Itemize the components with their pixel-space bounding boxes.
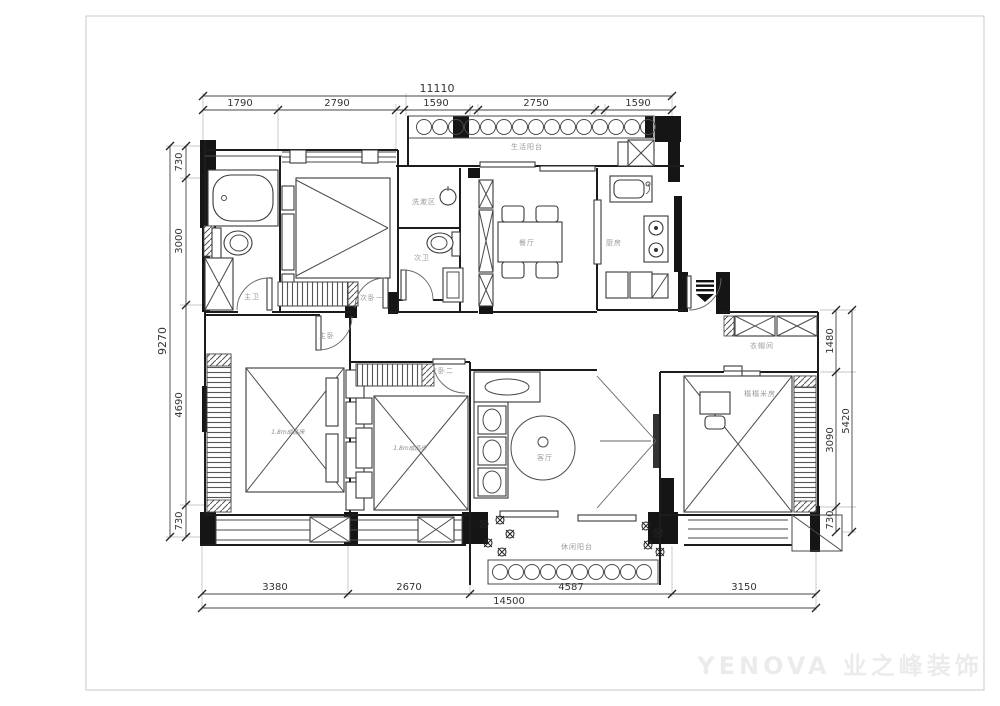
chair <box>536 206 558 222</box>
room-bedroom-two: 1.8m成品床 <box>356 364 468 510</box>
bed <box>296 178 390 278</box>
basin-icon <box>440 189 456 205</box>
room-master-bath: 主卫 <box>204 170 278 310</box>
pillow <box>326 378 338 426</box>
balcony-sliding-door-leaf <box>540 166 595 171</box>
label-service-balcony: 生活阳台 <box>511 142 543 151</box>
dim-right-3: 730 <box>825 510 836 529</box>
flue-shaft <box>618 140 654 166</box>
dim-bottom-total: 14500 <box>493 596 525 607</box>
stove-icon <box>644 216 668 262</box>
dimension-bottom: 3380 2670 4587 3150 14500 <box>198 546 820 612</box>
toilet-icon <box>212 228 252 258</box>
wardrobe <box>207 354 231 512</box>
floor-plan-page: 11110 1790 2790 1590 2750 1590 9270 730 … <box>0 0 1000 706</box>
label-wash-area: 洗漱区 <box>412 197 436 206</box>
room-guest-bath: 次卫 <box>401 232 463 302</box>
chair <box>502 206 524 222</box>
room-service-balcony: 生活阳台 <box>408 116 656 171</box>
nightstand-column <box>282 186 294 294</box>
dimension-left: 9270 730 3000 4690 730 <box>156 142 205 541</box>
dimension-top: 11110 1790 2790 1590 2750 1590 <box>199 82 676 152</box>
dim-bottom-4: 3150 <box>731 582 756 593</box>
wardrobe <box>356 364 434 386</box>
entry-direction-icon <box>696 280 714 302</box>
label-master-bedroom: 主卧 <box>319 331 335 340</box>
watermark: YENOVA 业之峰装饰 <box>696 652 983 680</box>
dimension-right: 1480 3090 730 5420 <box>820 306 856 536</box>
sliding-door-leaf <box>500 511 558 517</box>
sliding-door-leaf <box>724 366 742 371</box>
room-dining: 餐厅 <box>498 206 562 278</box>
bathtub-icon <box>208 170 278 226</box>
label-dining: 餐厅 <box>519 238 535 247</box>
tv-icon <box>597 376 659 508</box>
room-kitchen: 厨房 <box>594 176 668 298</box>
toilet-icon <box>427 232 460 256</box>
dim-left-4: 730 <box>174 511 185 530</box>
dim-top-2: 2790 <box>324 98 349 109</box>
door-master-bedroom: 主卧 <box>316 316 352 350</box>
sliding-door-leaf <box>742 371 760 376</box>
balcony-sliding-door-leaf <box>480 162 535 167</box>
dim-left-1: 730 <box>174 152 185 171</box>
dim-right-total: 5420 <box>841 408 852 433</box>
cabinet <box>443 268 463 302</box>
label-master-bath: 主卫 <box>244 292 260 301</box>
label-tatami: 榻榻米房 <box>744 389 776 398</box>
room-wash-area: 洗漱区 <box>412 186 456 206</box>
label-cloakroom: 衣帽间 <box>750 341 774 350</box>
dim-top-4: 2750 <box>523 98 548 109</box>
dim-top-3: 1590 <box>423 98 448 109</box>
bay-window-left <box>200 516 466 545</box>
sliding-door-leaf <box>578 515 636 521</box>
base-cabinets <box>606 272 668 298</box>
label-living: 客厅 <box>537 453 553 462</box>
label-master-bed: 1.8m成品床 <box>271 428 305 436</box>
chair <box>536 262 558 278</box>
rug: 客厅 <box>511 416 575 480</box>
label-leisure-balcony: 休闲阳台 <box>561 542 593 551</box>
dim-top-total: 11110 <box>420 82 455 95</box>
label-guest-bath: 次卫 <box>414 253 430 262</box>
floor-plan-canvas: 11110 1790 2790 1590 2750 1590 9270 730 … <box>0 0 1000 706</box>
dim-left-2: 3000 <box>174 228 185 253</box>
door-bedroom-two: 次卧二 <box>430 359 465 393</box>
kitchen-sink-icon <box>610 176 652 202</box>
kitchen-sliding-door <box>594 200 601 264</box>
label-bedroom-two-bed: 1.8m成品床 <box>393 444 427 452</box>
label-bedroom-one: 次卧一 <box>360 293 384 302</box>
label-kitchen: 厨房 <box>606 238 622 247</box>
window <box>282 150 396 163</box>
dim-left-3: 4690 <box>174 392 185 417</box>
page-border <box>86 16 984 690</box>
dim-left-total: 9270 <box>156 327 169 355</box>
dim-bottom-2: 2670 <box>396 582 421 593</box>
room-bedroom-one: 次卧一 <box>278 150 396 308</box>
entry <box>687 276 721 310</box>
room-leisure-balcony: 休闲阳台 <box>480 511 664 584</box>
room-cloakroom: 衣帽间 <box>724 316 817 376</box>
room-master-bedroom: 1.8m成品床 <box>207 354 364 512</box>
sofa <box>474 372 540 498</box>
bed <box>374 396 468 510</box>
dim-right-1: 1480 <box>825 328 836 353</box>
pillow <box>326 434 338 482</box>
room-tatami: 榻榻米房 <box>684 376 816 512</box>
desk-chair <box>700 392 730 429</box>
dim-bottom-1: 3380 <box>262 582 287 593</box>
wardrobe <box>278 282 358 306</box>
shower-tray <box>205 258 233 310</box>
door-guest-bath <box>401 270 433 300</box>
wardrobe <box>794 376 816 512</box>
chair <box>502 262 524 278</box>
room-living: 客厅 <box>474 372 659 508</box>
dim-right-2: 3090 <box>825 427 836 452</box>
column-cabinet-strip <box>479 180 493 306</box>
dim-top-5: 1590 <box>625 98 650 109</box>
dim-top-1: 1790 <box>227 98 252 109</box>
door-bedroom-one <box>355 278 388 308</box>
nightstand-column <box>356 398 372 498</box>
